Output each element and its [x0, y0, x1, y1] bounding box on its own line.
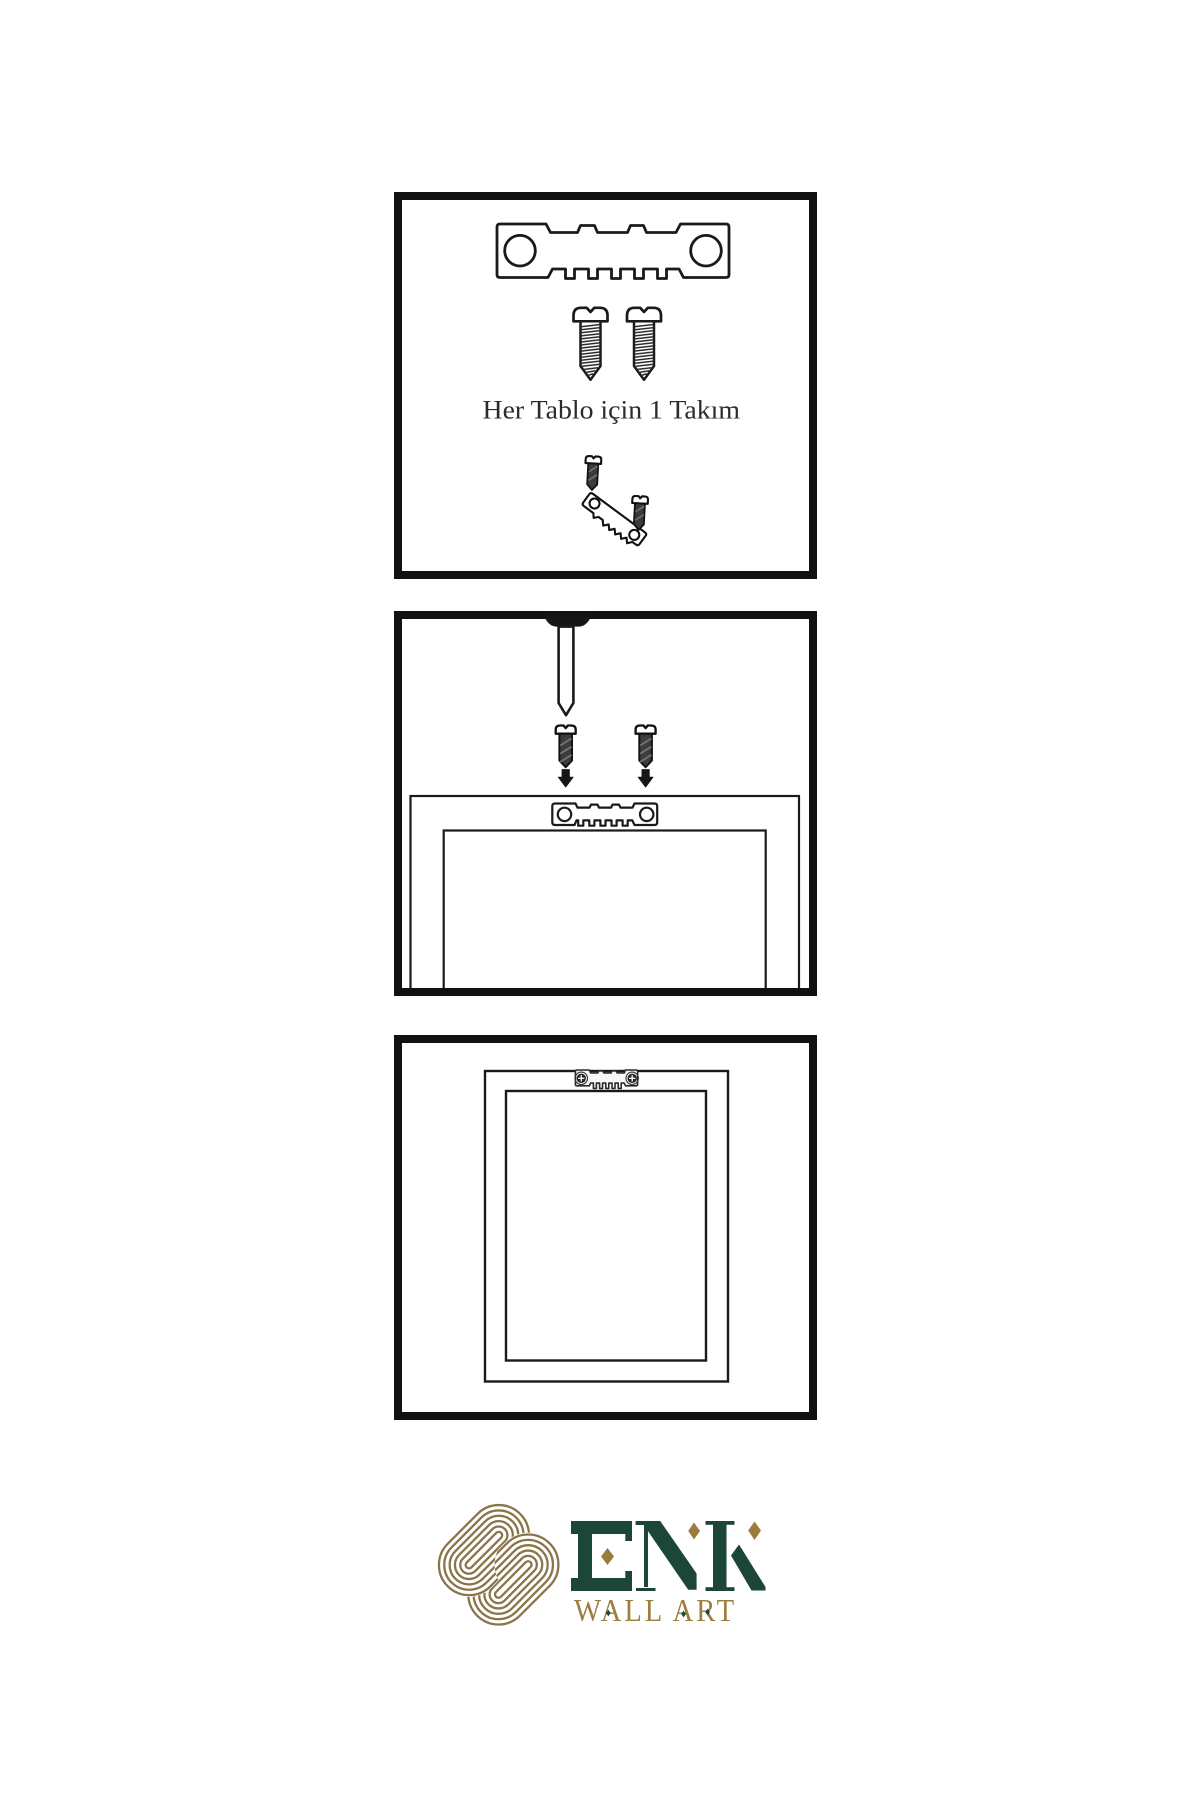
svg-text:Her Tablo için 1 Takım: Her Tablo için 1 Takım: [483, 395, 741, 425]
svg-text:WALL ART: WALL ART: [574, 1593, 737, 1628]
